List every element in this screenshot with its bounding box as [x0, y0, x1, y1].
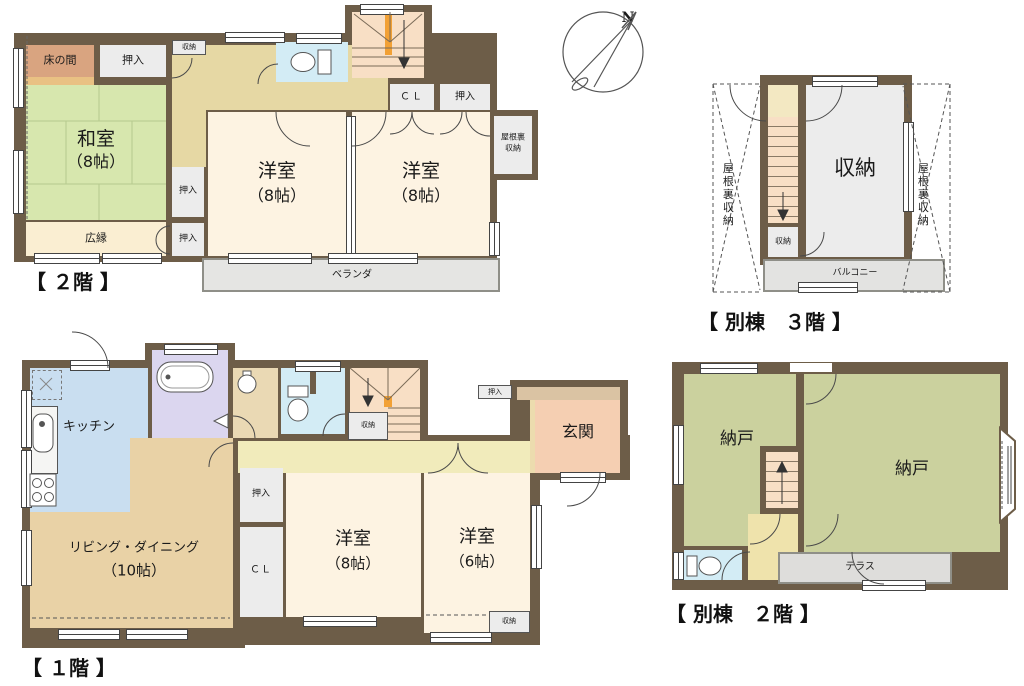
window [21, 530, 32, 586]
window [13, 48, 24, 108]
floor2-hallway-finger [172, 110, 206, 167]
window [164, 344, 218, 355]
window [13, 150, 24, 214]
floor2-hall-storage-label: 収納 [182, 43, 196, 51]
annex3-storage-main-label: 収納 [834, 156, 876, 180]
floor2-title: 【 ２階 】 [26, 266, 120, 295]
window [673, 552, 684, 580]
floor2-oshiire-right-label: 押入 [455, 91, 475, 103]
floor1-genkan-label: 玄関 [562, 423, 594, 441]
annex3-attic-right-label: 屋根裏収納 [916, 163, 929, 228]
floor2-stairs-marker [385, 12, 392, 55]
floorplan-canvas: 床の間 押入 収納 和室 （8帖） 押入 押入 広縁 洋室 （8帖） 洋室 （8… [0, 0, 1024, 686]
floor2-tokonoma-step [26, 77, 94, 85]
window [295, 361, 341, 372]
window [673, 425, 684, 485]
window [360, 4, 404, 15]
window [328, 253, 418, 264]
floor2-oshiire-bottom-label: 押入 [179, 234, 197, 244]
annex3-storage-small-label: 収納 [775, 236, 791, 245]
floor2-yoshitsu-left-name: 洋室 [258, 161, 296, 183]
window [560, 472, 606, 483]
window [903, 122, 914, 212]
annex3-balcony-label: バルコニー [833, 268, 878, 278]
floor2-yoshitsu-left [208, 112, 346, 256]
window [225, 32, 285, 43]
window [798, 282, 858, 293]
window [790, 363, 832, 372]
floor2-attic-line1: 屋根裏 [501, 132, 525, 141]
annex2-terrace-label: テラス [845, 561, 875, 573]
window [531, 505, 542, 569]
annex3-stairs [768, 117, 798, 223]
window [346, 116, 356, 254]
floor1-kitchen-label: キッチン [63, 421, 115, 436]
floor2-oshiire-mid-label: 押入 [179, 186, 197, 196]
floor2-washitsu-name: 和室 [77, 129, 115, 151]
floor2-yoshitsu-right-size: （8帖） [392, 187, 450, 205]
annex2-toilet [684, 550, 742, 580]
floor1-living-size: （10帖） [102, 562, 166, 579]
annex2-nando-right-label: 納戸 [895, 460, 929, 480]
window [228, 253, 312, 264]
floor1-porch [517, 387, 620, 400]
floor2-hiroen-label: 広縁 [85, 233, 107, 246]
floor2-toilet [276, 42, 348, 82]
floor1-title: 【 １階 】 [22, 652, 116, 681]
annex2-stairs [766, 452, 798, 508]
floor2-yoshitsu-right-name: 洋室 [402, 161, 440, 183]
window [34, 253, 100, 264]
floor1-stair-storage-label: 収納 [361, 421, 375, 429]
floor1-oshiire-top-label: 押入 [488, 388, 502, 396]
floor1-kitchen-counter [30, 406, 58, 474]
annex2-nando-left-label: 納戸 [720, 430, 754, 450]
floor2-yoshitsu-left-size: （8帖） [248, 187, 306, 205]
floor2-veranda-label: ベランダ [332, 269, 372, 281]
annex3-title: 【 別棟 ３階 】 [698, 306, 852, 335]
floor1-yoshitsu8-size: （8帖） [326, 555, 381, 572]
floor1-living-a [130, 438, 233, 512]
window [102, 253, 162, 264]
window [303, 616, 377, 627]
window [862, 580, 926, 591]
floor1-living-name: リビング・ダイニング [69, 542, 199, 557]
floor1-bath [152, 350, 228, 438]
floor1-stairs-marker [384, 396, 392, 407]
window [812, 76, 878, 87]
window [126, 629, 188, 640]
window [700, 363, 758, 374]
floor1-cl-label: ＣＬ [250, 564, 272, 576]
annex3-stairs-landing [768, 85, 798, 117]
annex3-attic-left-label: 屋根裏収納 [721, 163, 734, 228]
window [21, 390, 32, 448]
floor1-washbasin-room [233, 368, 278, 438]
floor2-washitsu-size: （8帖） [67, 153, 125, 171]
window [70, 360, 110, 371]
floor1-yoshitsu6-name: 洋室 [459, 528, 495, 549]
floor2-cl-label: ＣＬ [400, 91, 424, 103]
window [296, 33, 342, 44]
floor1-pantry-hatch [32, 370, 62, 400]
window [58, 629, 120, 640]
window [430, 632, 492, 643]
annex2-title: 【 別棟 ２階 】 [666, 598, 820, 627]
floor2-tokonoma-label: 床の間 [44, 55, 77, 68]
window [489, 222, 500, 256]
floor2-yoshitsu-right [352, 112, 490, 256]
floor1-storage-corner-label: 収納 [502, 617, 516, 625]
floor2-oshiire-top-label: 押入 [122, 55, 144, 68]
floor2-attic-line2: 収納 [505, 143, 521, 152]
floor1-oshiire-label: 押入 [252, 489, 270, 499]
floor1-yoshitsu8-name: 洋室 [335, 530, 371, 551]
window [21, 450, 32, 508]
floor1-yoshitsu6-size: （6帖） [450, 553, 505, 570]
compass-north-label: N [622, 10, 635, 26]
